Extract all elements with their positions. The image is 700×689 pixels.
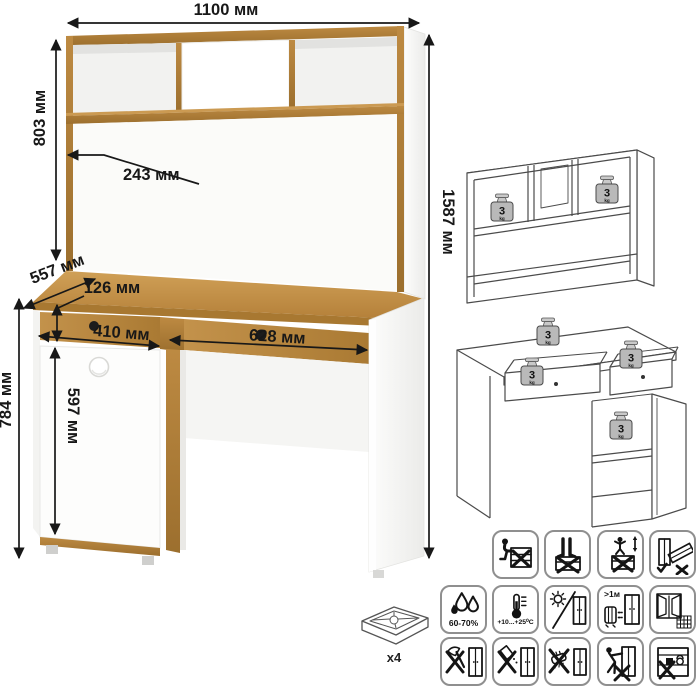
dim-door-height: 597 мм bbox=[64, 388, 82, 445]
load-unit: kg bbox=[529, 380, 535, 385]
spilling-container-icon bbox=[496, 642, 536, 682]
abrasive-sponge-icon bbox=[548, 642, 588, 682]
care-icon-transport-upright bbox=[649, 530, 696, 579]
load-badge-desk-top: 3 kg bbox=[537, 318, 559, 345]
care-icon-temperature-range: +10...+25⁰C bbox=[492, 585, 539, 634]
care-icon-no-dragging bbox=[597, 637, 644, 686]
load-unit: kg bbox=[618, 434, 624, 439]
care-icon-no-heavy-items-inside bbox=[649, 637, 696, 686]
load-unit: kg bbox=[499, 216, 505, 221]
temperature-label: +10...+25⁰C bbox=[497, 620, 533, 627]
sun-slash-cabinet-icon bbox=[548, 590, 588, 630]
dim-top-width: 1100 мм bbox=[194, 1, 259, 19]
product-dimension-diagram: 1100 мм 803 мм 243 мм 1587 мм 557 мм 126… bbox=[0, 0, 700, 689]
dim-right-drawer-width: 628 мм bbox=[249, 326, 307, 347]
open-window-icon bbox=[653, 590, 693, 630]
dim-table-height: 784 мм bbox=[0, 372, 15, 429]
care-icon-no-spilling-liquids bbox=[492, 637, 539, 686]
care-icon-ventilation-window bbox=[649, 585, 696, 634]
hutch-render bbox=[66, 26, 425, 299]
dim-hutch-height: 803 мм bbox=[31, 90, 49, 147]
care-icon-no-jumping bbox=[597, 530, 644, 579]
care-icon-no-abrasive-cleaning bbox=[544, 637, 591, 686]
thermometer-icon bbox=[496, 593, 536, 620]
load-badge-cabinet: 3 kg bbox=[610, 412, 632, 439]
hutch-line-drawing bbox=[467, 150, 654, 303]
water-drops-icon bbox=[444, 592, 484, 619]
load-unit: kg bbox=[628, 363, 634, 368]
no-jumping-icon bbox=[601, 535, 641, 575]
load-unit: kg bbox=[604, 198, 610, 203]
load-unit: kg bbox=[545, 340, 551, 345]
care-icon-no-standing bbox=[544, 530, 591, 579]
diagram-canvas: 1100 мм 803 мм 243 мм 1587 мм 557 мм 126… bbox=[0, 0, 700, 689]
no-standing-icon bbox=[548, 535, 588, 575]
care-icon-avoid-direct-sunlight bbox=[544, 585, 591, 634]
care-icon-heater-distance: >1м bbox=[597, 585, 644, 634]
care-icon-humidity-range: 60-70% bbox=[440, 585, 487, 634]
foot-glide-icon: x4 bbox=[362, 607, 428, 665]
loaded-cabinet-icon bbox=[653, 642, 693, 682]
dragging-person-icon bbox=[601, 642, 641, 682]
heater-distance-label: >1м bbox=[604, 590, 620, 599]
axe-cabinet-icon bbox=[444, 642, 484, 682]
no-sitting-icon bbox=[496, 535, 536, 575]
desk-line-drawing bbox=[457, 327, 686, 527]
transport-upright-icon bbox=[653, 535, 693, 575]
dim-total-height: 1587 мм bbox=[439, 189, 457, 255]
care-icon-no-sitting bbox=[492, 530, 539, 579]
care-icon-no-sharp-tools bbox=[440, 637, 487, 686]
humidity-label: 60-70% bbox=[449, 619, 478, 628]
desk-render bbox=[33, 271, 424, 578]
dim-drawer-front-height: 126 мм bbox=[84, 279, 141, 297]
foot-count-label: x4 bbox=[387, 650, 402, 665]
dim-niche-depth: 243 мм bbox=[123, 166, 180, 184]
